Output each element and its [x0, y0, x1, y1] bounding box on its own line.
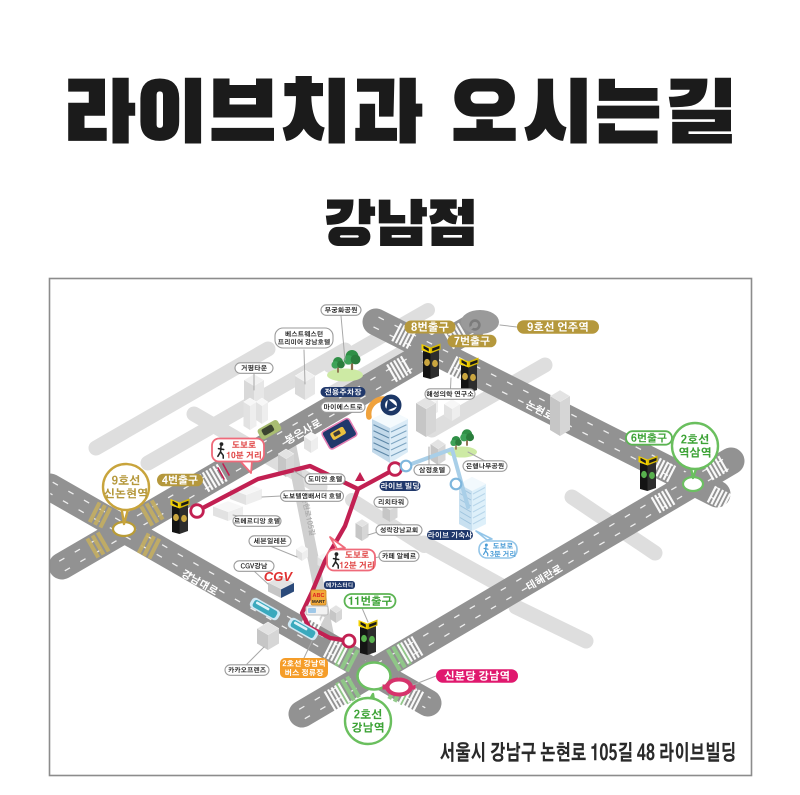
svg-text:MART: MART — [312, 599, 325, 604]
